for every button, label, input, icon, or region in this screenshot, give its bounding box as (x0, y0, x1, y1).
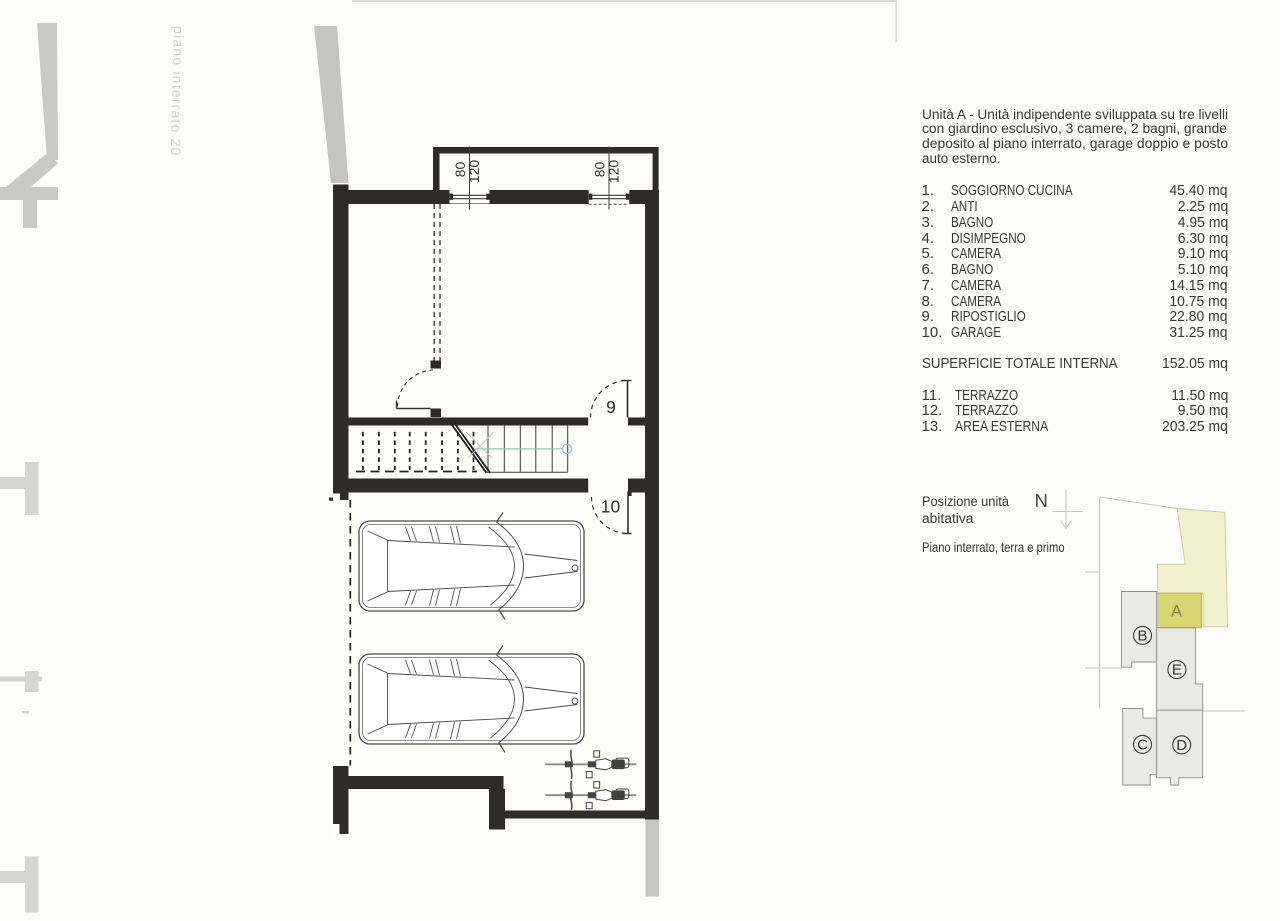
svg-text:E: E (1172, 662, 1182, 679)
svg-text:120: 120 (466, 160, 482, 184)
svg-text:D: D (1176, 737, 1187, 754)
svg-text:piano interrato 20: piano interrato 20 (168, 26, 187, 157)
svg-text:9: 9 (606, 397, 616, 417)
svg-text:120: 120 (606, 160, 622, 184)
svg-text:B: B (1137, 628, 1147, 645)
svg-text:C: C (1137, 736, 1148, 753)
svg-text:A: A (1171, 603, 1182, 621)
svg-text:10: 10 (601, 497, 621, 517)
